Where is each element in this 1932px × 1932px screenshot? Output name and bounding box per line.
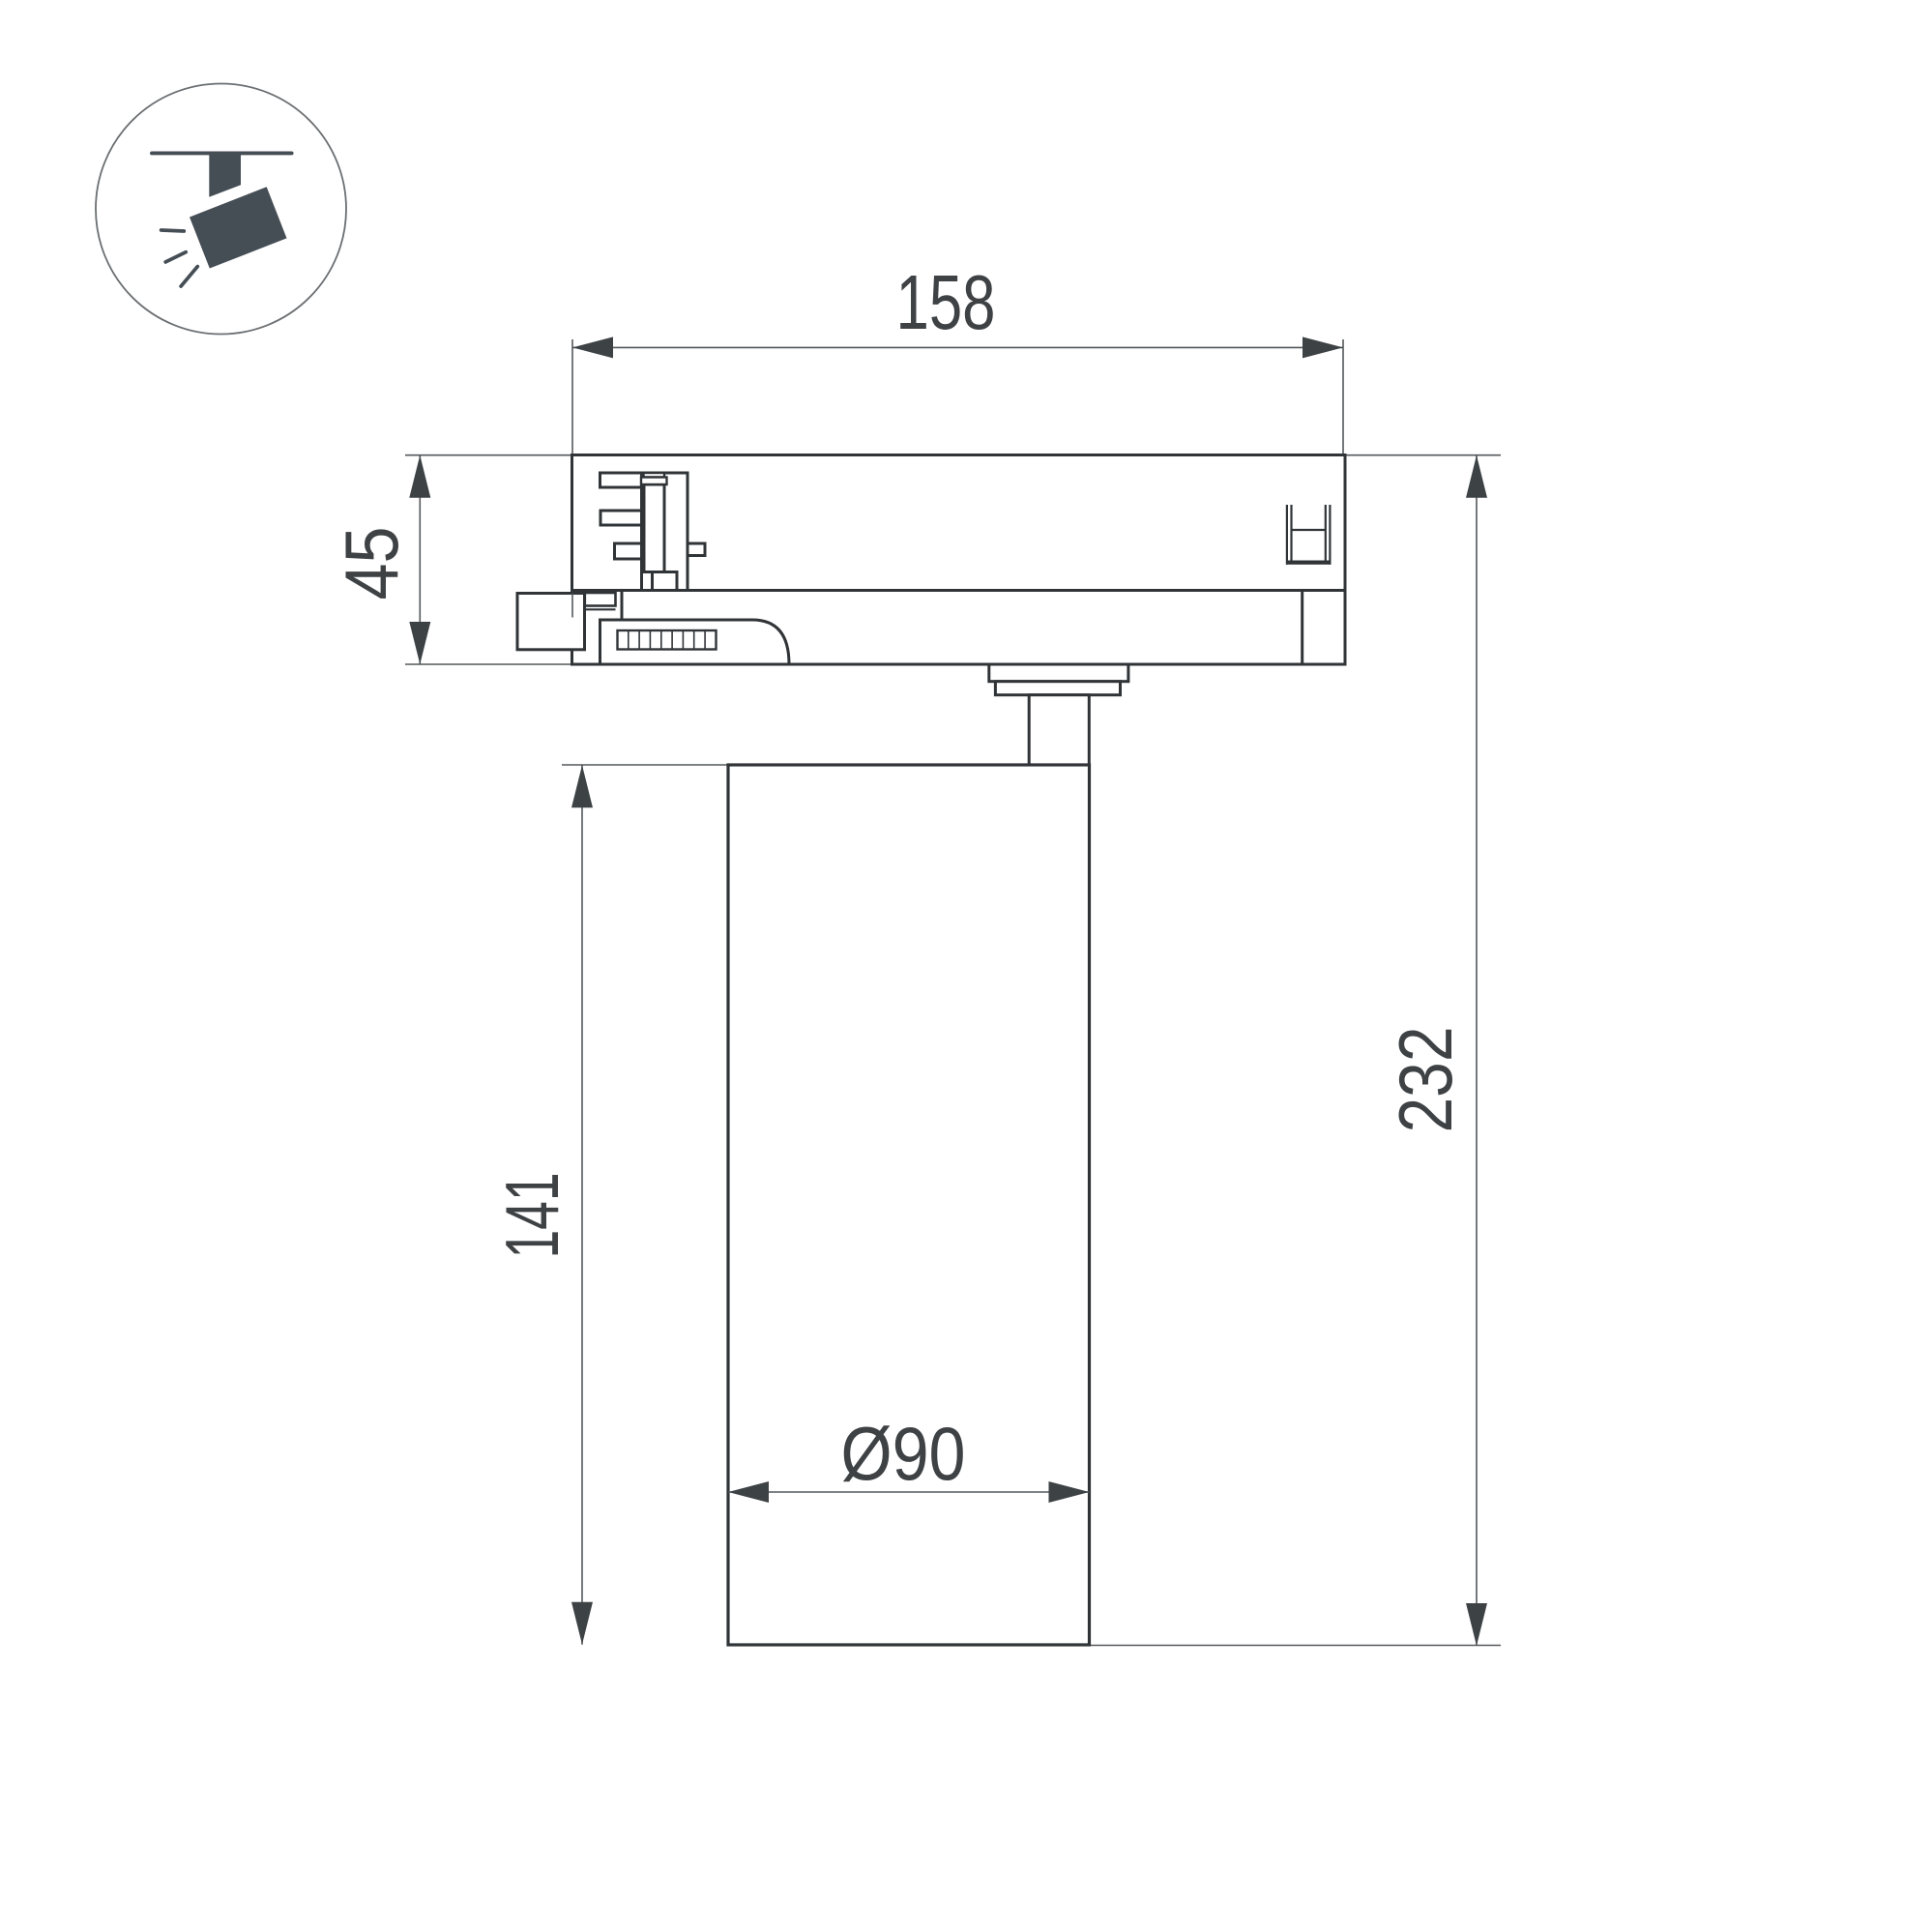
svg-text:232: 232 (1383, 1027, 1468, 1133)
svg-text:158: 158 (896, 259, 996, 345)
svg-text:141: 141 (489, 1173, 574, 1259)
svg-text:Ø90: Ø90 (841, 1411, 966, 1496)
svg-text:45: 45 (329, 527, 414, 600)
